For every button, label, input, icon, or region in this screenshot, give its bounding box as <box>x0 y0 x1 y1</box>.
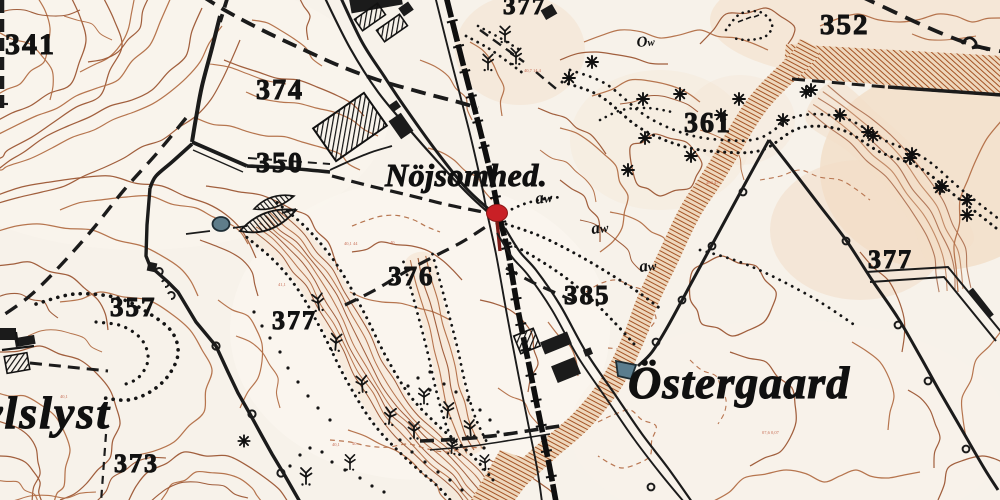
svg-text:Nöjsomhed.: Nöjsomhed. <box>384 157 547 193</box>
svg-text:Ow: Ow <box>636 33 656 51</box>
svg-text:vlslyst: vlslyst <box>0 387 111 438</box>
svg-text:Östergaard: Östergaard <box>628 357 850 408</box>
svg-text:373: 373 <box>114 449 159 478</box>
svg-text:400 47: 400 47 <box>706 180 719 185</box>
svg-text:376: 376 <box>388 261 435 291</box>
svg-text:40: 40 <box>390 240 395 245</box>
svg-text:377: 377 <box>272 306 317 335</box>
svg-text:352: 352 <box>820 9 870 41</box>
svg-text:377: 377 <box>868 245 913 274</box>
svg-text:aw: aw <box>590 217 610 238</box>
svg-text:385: 385 <box>564 280 611 310</box>
svg-text:377: 377 <box>503 0 547 20</box>
svg-text:374: 374 <box>256 75 304 106</box>
svg-text:341: 341 <box>5 28 56 61</box>
svg-text:350: 350 <box>256 148 304 179</box>
svg-text:361: 361 <box>684 108 732 139</box>
svg-text:aw: aw <box>638 255 658 276</box>
svg-text:357: 357 <box>110 292 157 322</box>
svg-text:40: 40 <box>352 441 357 446</box>
